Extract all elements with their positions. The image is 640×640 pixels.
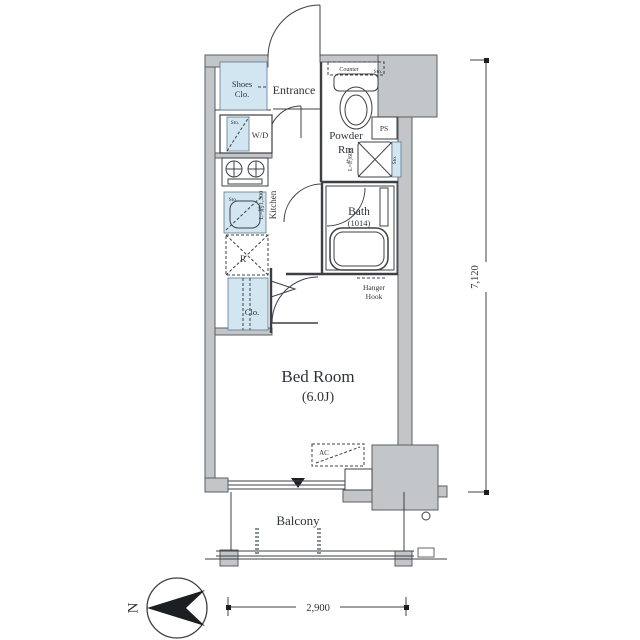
wall-stub-bottom — [343, 490, 372, 502]
bath-room: Bath (1014) — [326, 186, 394, 270]
entrance-label: Entrance — [273, 83, 316, 97]
kitchen-area: Sto. L=約1,300 Kitchen — [222, 158, 278, 233]
bath-size-label: (1014) — [348, 218, 371, 228]
washer-dryer-area: Sto. W/D — [220, 115, 272, 153]
stove-box — [222, 158, 268, 186]
ac-label: AC — [319, 449, 329, 457]
counter-label: Counter — [339, 67, 358, 73]
compass: N — [125, 578, 207, 638]
wall-left — [205, 55, 215, 492]
bathtub-inner — [334, 232, 384, 266]
dimension-height: 7,120 — [468, 58, 489, 495]
toilet-bowl-inner — [345, 95, 367, 125]
closet-box — [228, 278, 268, 330]
shoes-closet-label-2: Clo. — [235, 89, 249, 99]
bedroom-label: Bed Room — [281, 367, 354, 386]
bath-label: Bath — [348, 206, 370, 218]
kitchen-label: Kitchen — [268, 190, 278, 219]
refrigerator-diagonal — [226, 235, 268, 275]
opening-marker-triangle — [291, 478, 305, 488]
bedroom: Bed Room (6.0J) AC — [228, 367, 372, 490]
column-bottom-right — [372, 445, 438, 510]
shoes-closet-label-1: Shoes — [232, 79, 252, 89]
powder-door-arc — [284, 184, 322, 222]
floor-plan-canvas: Shoes Clo. Entrance Sto. W/D Sto. L=約1,3… — [0, 0, 640, 640]
wall-nub-right — [438, 486, 447, 497]
refrigerator-label: R — [240, 255, 247, 265]
closet-folding-door — [271, 281, 295, 297]
balcony-label: Balcony — [276, 513, 320, 528]
wd-label: W/D — [252, 130, 269, 140]
powder-room-label-1: Powder — [329, 130, 363, 142]
dimension-width-label: 2,900 — [306, 603, 330, 614]
sink-storage-label: Sto. — [229, 197, 238, 203]
refrigerator-box — [226, 235, 268, 275]
dim-dot — [484, 490, 489, 495]
storage-column: R Clo. — [226, 235, 268, 330]
dimension-height-label: 7,120 — [470, 265, 481, 289]
dim-dot — [404, 605, 409, 610]
balcony-post-left — [220, 550, 238, 566]
kitchen-length-label: L=約1,300 — [256, 191, 265, 220]
bedroom-size-label: (6.0J) — [302, 390, 335, 405]
drain-circle — [422, 512, 430, 520]
hanger-hook: Hanger Hook — [357, 278, 387, 301]
washbasin-storage-label: Sto. — [392, 155, 398, 164]
bathtub — [330, 228, 388, 270]
dimension-width: 2,900 — [226, 597, 409, 616]
dim-dot — [484, 58, 489, 63]
entrance-area: Shoes Clo. Entrance — [220, 62, 315, 110]
refrigerator-diagonal — [226, 235, 268, 275]
north-label: N — [125, 602, 141, 613]
closet-label: Clo. — [245, 307, 259, 317]
hanger-hook-label-1: Hanger — [363, 283, 386, 292]
dim-dot — [226, 605, 231, 610]
floor-plan: Shoes Clo. Entrance Sto. W/D Sto. L=約1,3… — [0, 0, 640, 640]
powder-room-label-2: Rm — [338, 144, 354, 156]
wall-under-wd — [215, 153, 272, 158]
toilet-tank — [334, 74, 378, 91]
wall-bottom-left — [205, 478, 228, 492]
wall-top-mid — [320, 55, 378, 62]
column-top-right — [378, 55, 437, 117]
entrance-door-arc — [268, 5, 320, 57]
pipe-space-label: PS — [380, 124, 388, 133]
balcony-step — [418, 548, 434, 557]
hall-door-arc — [269, 106, 301, 138]
wd-storage-label: Sto. — [231, 120, 240, 126]
hanger-hook-label-2: Hook — [366, 292, 383, 301]
window-step — [345, 469, 372, 490]
bath-shelf — [380, 188, 388, 226]
